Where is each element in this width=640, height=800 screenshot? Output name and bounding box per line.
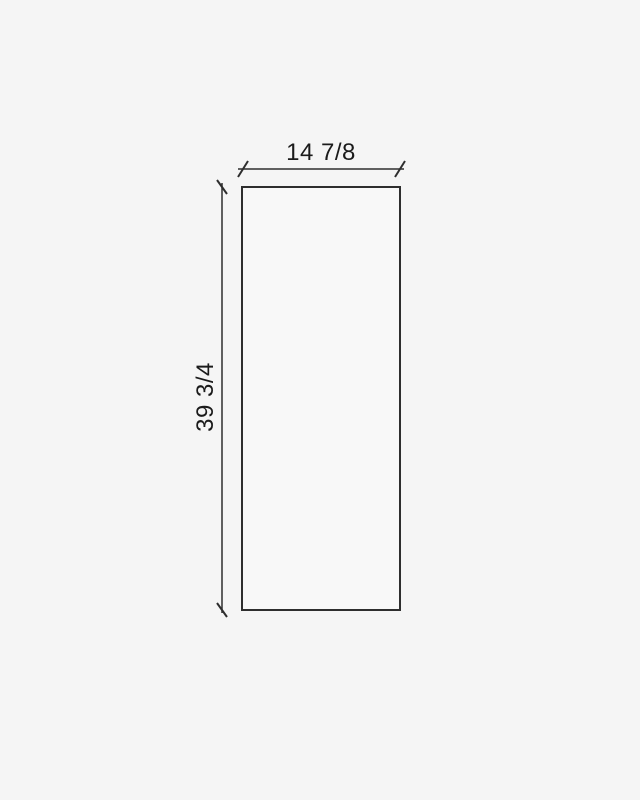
dimension-drawing bbox=[0, 0, 640, 800]
width-dimension-label: 14 7/8 bbox=[286, 141, 356, 165]
drawing-canvas: 14 7/8 39 3/4 bbox=[0, 0, 640, 800]
height-dimension-label: 39 3/4 bbox=[194, 362, 218, 432]
panel-rectangle bbox=[242, 187, 400, 610]
